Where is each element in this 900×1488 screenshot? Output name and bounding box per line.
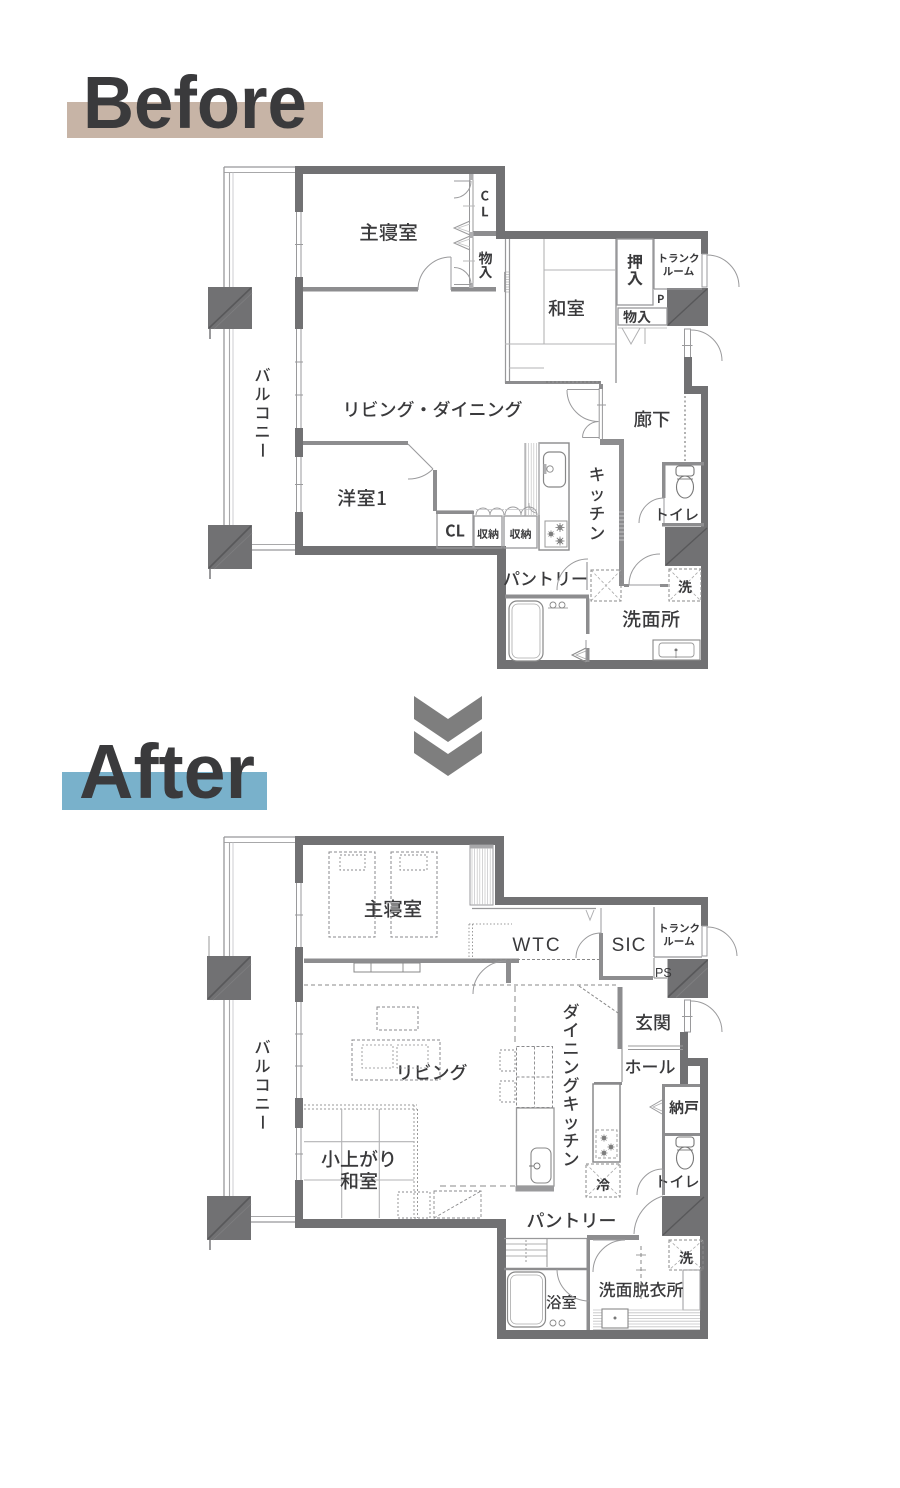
svg-text:SIC: SIC — [612, 935, 647, 956]
svg-text:WTC: WTC — [512, 935, 561, 956]
